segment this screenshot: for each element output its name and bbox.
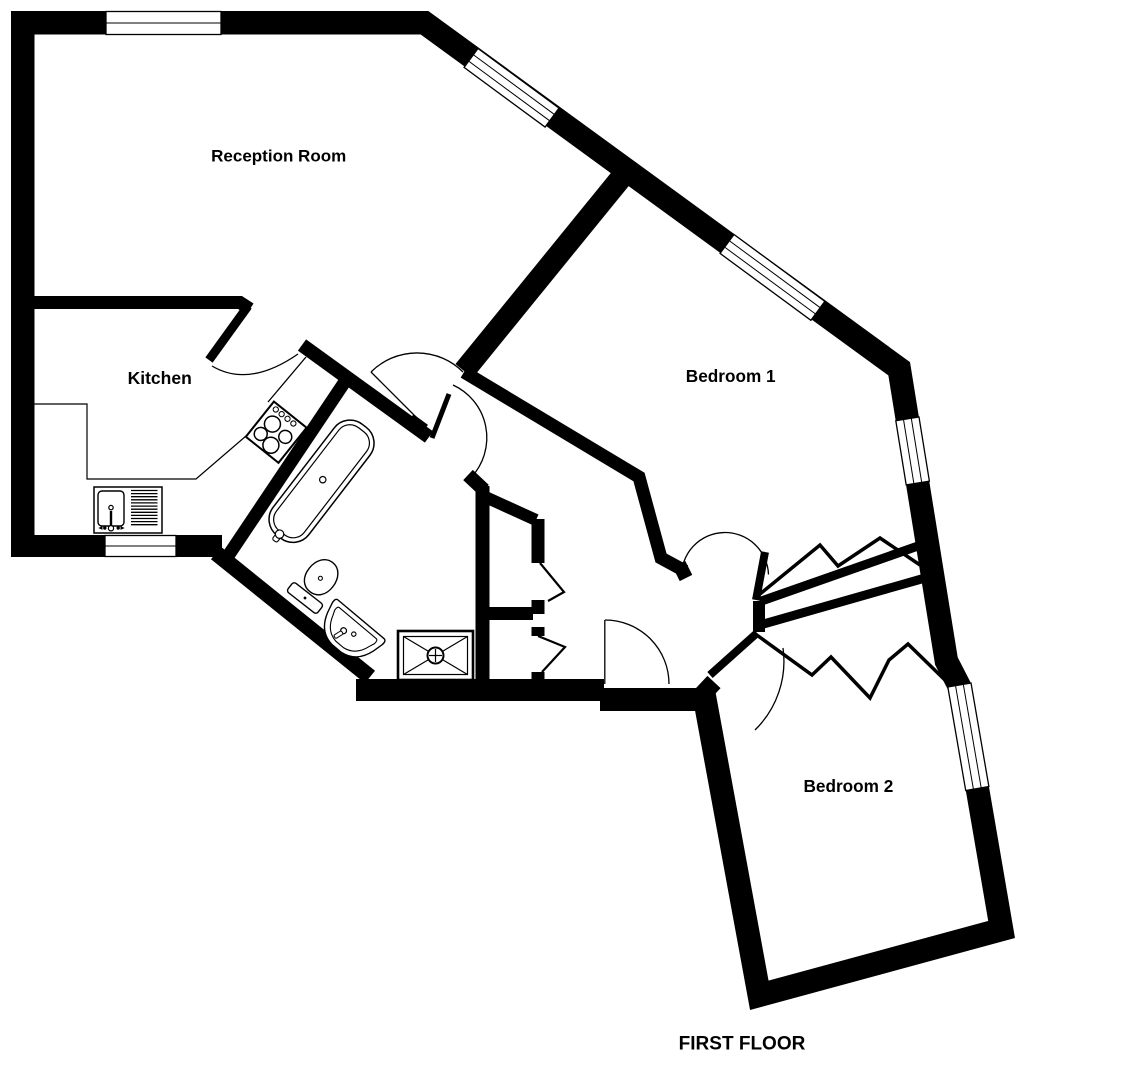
svg-text:Kitchen: Kitchen bbox=[128, 368, 192, 388]
svg-text:Bedroom 2: Bedroom 2 bbox=[804, 776, 894, 796]
svg-text:Bedroom 1: Bedroom 1 bbox=[686, 366, 776, 386]
svg-text:FIRST FLOOR: FIRST FLOOR bbox=[679, 1034, 806, 1055]
svg-text:Reception Room: Reception Room bbox=[211, 147, 346, 166]
